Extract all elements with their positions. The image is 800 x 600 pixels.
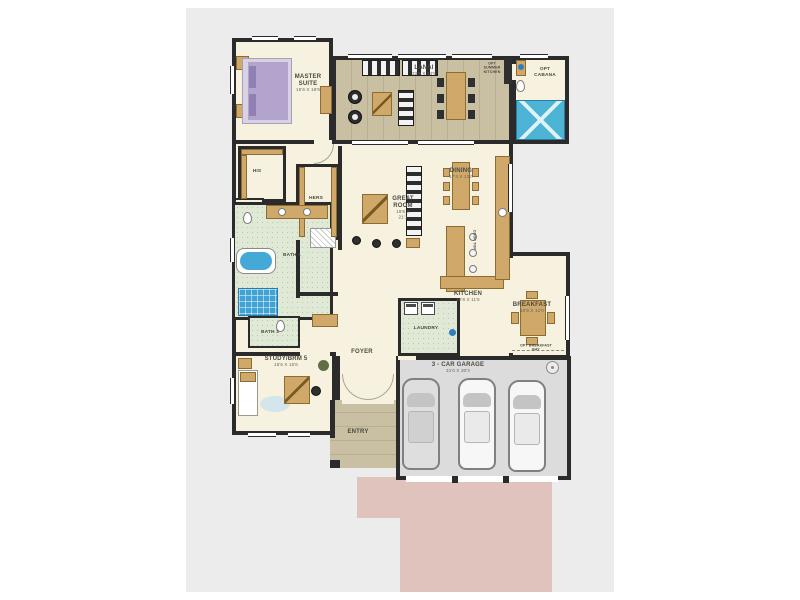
porch-wall — [330, 400, 335, 438]
label-master-suite: MASTER SUITE 16'6 X 18'9 — [291, 74, 325, 96]
room-name: COOK TOP — [472, 230, 476, 250]
window — [452, 54, 492, 59]
sliding-door — [352, 140, 408, 145]
outdoor-sofa-icon — [398, 90, 414, 126]
chair-icon — [472, 182, 479, 191]
hall-cabinet — [312, 314, 338, 327]
desk-icon — [284, 376, 310, 404]
sink-icon — [518, 64, 524, 70]
label-opt-breakfast-bay: OPT BREAKFAST BAY — [519, 344, 553, 353]
chair-icon — [468, 94, 475, 103]
chair-icon — [468, 78, 475, 87]
room-dims: 17'4 X 13'0 — [446, 175, 476, 180]
shower-icon — [238, 288, 278, 316]
sliding-door — [508, 164, 513, 212]
desk-chair-icon — [311, 386, 321, 396]
room-name: BATH 1 — [283, 253, 301, 258]
label-dining: DINING 17'4 X 13'0 — [441, 168, 481, 182]
label-kitchen: KITCHEN 19'8 X 11'5 — [445, 291, 491, 305]
driveway-walkway — [357, 477, 403, 518]
room-name: BATH 3 — [261, 330, 279, 335]
room-dims: 31'0 X 30'3 — [428, 369, 488, 374]
closet-shelf — [241, 149, 283, 155]
room-dims: 19'8 X 11'5 — [451, 298, 486, 303]
outdoor-dining-table-icon — [446, 72, 466, 120]
room-name: ENTRY — [347, 429, 368, 435]
closet-shelf — [241, 155, 247, 199]
label-lanai: LANAI 32'6 X 14'5 — [404, 65, 444, 79]
plant-icon — [318, 360, 329, 371]
garage-door-post — [452, 476, 458, 483]
room-name: HIS — [253, 169, 261, 174]
hall-wall — [296, 240, 300, 298]
label-great-room: GREAT ROOM 19'6 X 21'1 — [388, 196, 418, 225]
room-name: OPT BREAKFAST BAY — [520, 344, 552, 352]
label-bath-1: BATH 1 — [276, 253, 308, 259]
label-cook-top: COOK TOP — [470, 228, 476, 252]
room-name: OPT SUMMER KITCHEN — [484, 62, 501, 74]
coffee-table-icon — [372, 92, 392, 116]
pillow — [249, 66, 256, 88]
sink-icon — [498, 208, 507, 217]
room-name: HERS — [309, 196, 323, 201]
master-door-opening — [314, 140, 332, 144]
bathtub-water — [240, 252, 272, 270]
closet-shelf — [331, 167, 337, 237]
label-bath-3: BATH 3 — [256, 330, 285, 336]
room-dims: 15'6 X 15'6 — [265, 363, 307, 368]
cabinet-icon — [238, 358, 252, 369]
room-name: GREAT ROOM — [392, 196, 414, 209]
room-name: LAUNDRY — [414, 326, 438, 331]
chair-icon — [437, 94, 444, 103]
window — [348, 54, 392, 59]
sink-icon — [278, 208, 286, 216]
bath1-vanity — [266, 205, 328, 219]
hall-wall — [338, 146, 342, 250]
label-opt-cabana: OPT CABANA — [533, 67, 557, 79]
label-entry: ENTRY — [338, 429, 378, 436]
outdoor-chair-icon — [348, 110, 362, 124]
chair-icon — [526, 291, 538, 299]
label-study: STUDY/BRM 5 15'6 X 15'6 — [258, 356, 314, 370]
car-icon — [508, 380, 546, 472]
plan-marker-icon — [546, 361, 559, 374]
floor-plan: MASTER SUITE 16'6 X 18'9 LANAI 32'6 X 14… — [0, 0, 800, 600]
driveway — [400, 477, 552, 592]
room-name: OPT CABANA — [534, 67, 556, 78]
front-door-opening — [342, 400, 394, 404]
window — [248, 432, 276, 437]
label-laundry: LAUNDRY — [408, 326, 443, 332]
cabana-door-opening — [512, 64, 516, 80]
ottoman-icon — [352, 236, 361, 245]
outdoor-chair-icon — [348, 90, 362, 104]
window — [565, 296, 570, 340]
window — [288, 432, 310, 437]
label-hers-closet: HERS — [305, 196, 327, 202]
label-foyer: FOYER — [342, 349, 382, 356]
window — [230, 238, 235, 262]
dryer-icon — [421, 302, 435, 315]
stool-icon — [469, 265, 477, 273]
grill-icon — [504, 58, 512, 84]
outdoor-sofa-icon — [362, 60, 400, 76]
window — [230, 378, 235, 404]
room-name: DINING — [450, 168, 472, 174]
media-console-icon — [362, 194, 388, 224]
chair-icon — [437, 110, 444, 119]
window — [252, 36, 278, 41]
room-name: 3 - CAR GARAGE — [432, 362, 484, 368]
garage-door-post — [503, 476, 509, 483]
chair-icon — [472, 196, 479, 205]
pillow — [249, 94, 256, 116]
porch-corner-stub — [330, 460, 340, 468]
ottoman-icon — [372, 239, 381, 248]
toilet-icon — [243, 212, 252, 224]
closet-shelf — [299, 167, 305, 237]
label-breakfast: BREAKFAST 10'8 X 12'0 — [512, 302, 552, 316]
window — [230, 66, 235, 94]
room-name: MASTER SUITE — [295, 74, 322, 87]
room-dims: 16'6 X 18'9 — [295, 88, 321, 93]
car-icon — [458, 378, 496, 470]
ottoman-icon — [392, 239, 401, 248]
room-name: BREAKFAST — [513, 302, 551, 308]
room-dims: 32'6 X 14'5 — [409, 72, 439, 77]
washer-icon — [404, 302, 418, 315]
chair-icon — [443, 182, 450, 191]
window — [294, 36, 316, 41]
room-name: STUDY/BRM 5 — [265, 356, 308, 362]
room-dims: 10'8 X 12'0 — [517, 309, 547, 314]
pillow — [240, 372, 256, 382]
room-name: KITCHEN — [454, 291, 482, 297]
car-icon — [402, 378, 440, 470]
garage-door-opening — [406, 476, 558, 482]
cabana-shower-tile — [516, 100, 565, 140]
room-name: FOYER — [351, 349, 373, 355]
sliding-door — [418, 140, 474, 145]
room-dims: 19'6 X 21'1 — [392, 210, 415, 221]
laundry-sink-icon — [449, 329, 456, 336]
sofa-end-table — [406, 238, 420, 248]
label-garage: 3 - CAR GARAGE 31'0 X 30'3 — [418, 362, 498, 376]
window — [398, 54, 446, 59]
label-his-closet: HIS — [247, 169, 266, 175]
sink-icon — [303, 208, 311, 216]
label-opt-summer-kitchen: OPT SUMMER KITCHEN — [483, 62, 501, 75]
window — [520, 54, 548, 59]
toilet-icon — [516, 80, 525, 92]
chair-icon — [443, 196, 450, 205]
garage-entry-opening — [398, 356, 416, 360]
hall-wall — [298, 292, 338, 296]
room-name: LANAI — [414, 65, 433, 71]
chair-icon — [468, 110, 475, 119]
